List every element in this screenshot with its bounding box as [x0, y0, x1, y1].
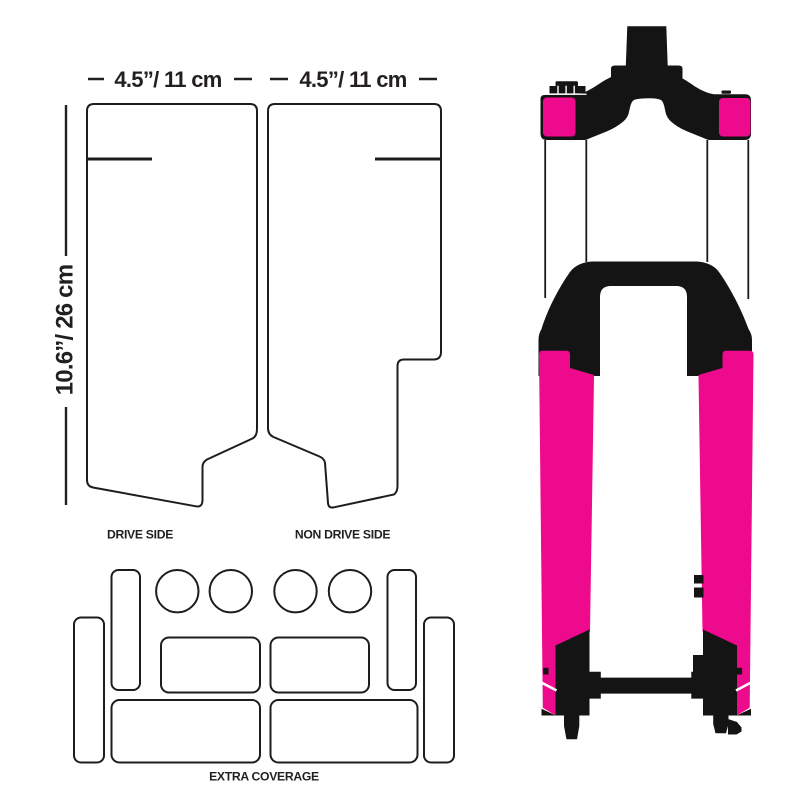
svg-text:NON DRIVE SIDE: NON DRIVE SIDE [295, 528, 391, 542]
svg-text:4.5”/ 11 cm: 4.5”/ 11 cm [114, 67, 221, 92]
svg-text:EXTRA COVERAGE: EXTRA COVERAGE [209, 770, 319, 784]
svg-text:4.5”/ 11 cm: 4.5”/ 11 cm [299, 67, 406, 92]
svg-text:DRIVE SIDE: DRIVE SIDE [107, 528, 173, 542]
svg-text:10.6”/ 26 cm: 10.6”/ 26 cm [52, 265, 79, 396]
